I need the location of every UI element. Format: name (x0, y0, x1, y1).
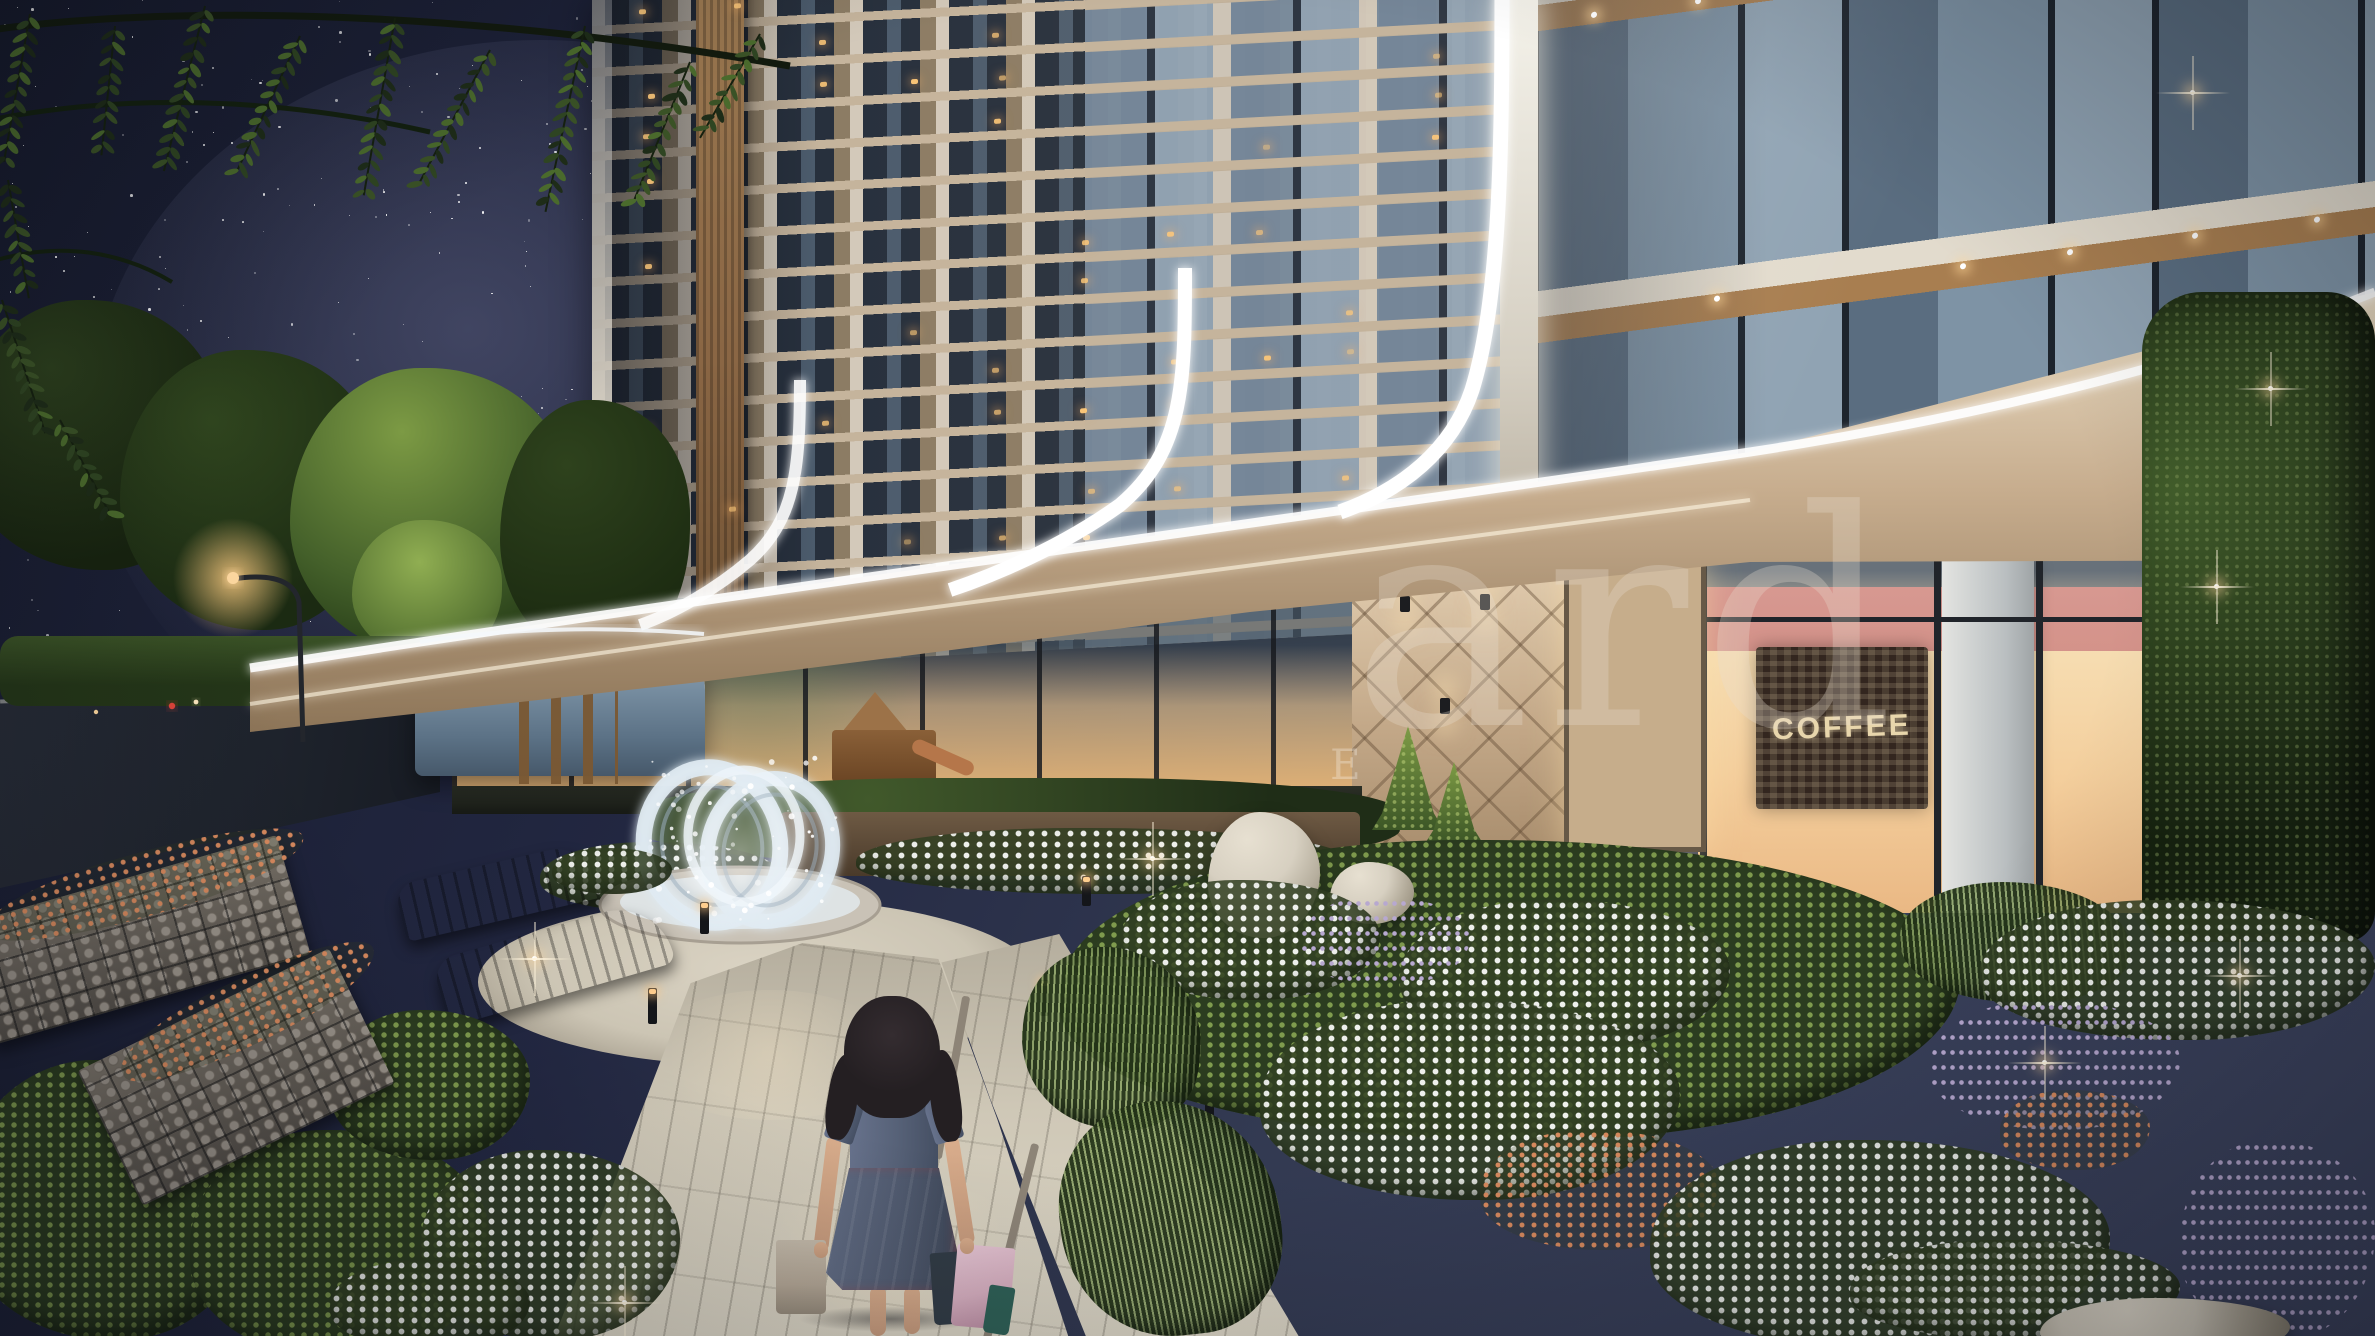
vignette-overlay (0, 0, 2375, 1336)
architectural-render: COFFEE (0, 0, 2375, 1336)
